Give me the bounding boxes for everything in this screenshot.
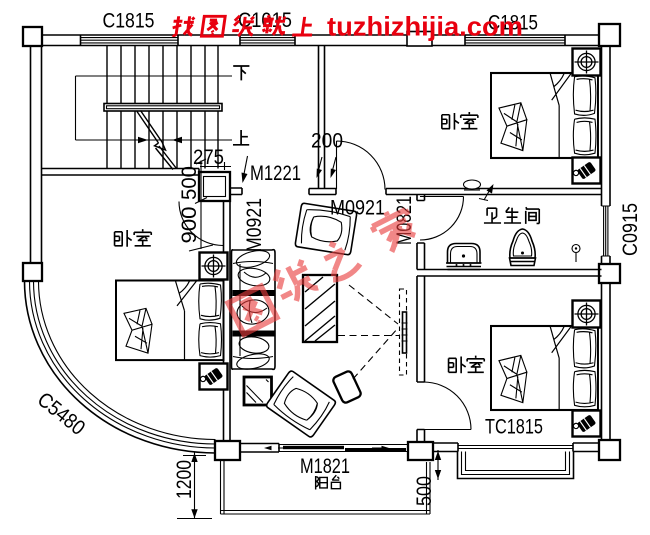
svg-text:M1221: M1221 [250, 162, 301, 185]
svg-text:M0921: M0921 [243, 198, 266, 252]
svg-text:C1815: C1815 [103, 10, 155, 33]
svg-text:500: 500 [178, 166, 201, 200]
svg-text:M1821: M1821 [300, 455, 350, 478]
svg-text:M0921: M0921 [330, 197, 385, 220]
svg-text:C0915: C0915 [619, 203, 642, 256]
svg-text:900: 900 [178, 207, 201, 244]
svg-text:500: 500 [413, 476, 436, 506]
svg-text:200: 200 [311, 130, 343, 153]
svg-text:275: 275 [193, 146, 224, 169]
svg-text:1200: 1200 [173, 460, 196, 499]
svg-text:tuzhizhijia.com: tuzhizhijia.com [327, 12, 523, 42]
svg-text:TC1815: TC1815 [485, 416, 543, 439]
